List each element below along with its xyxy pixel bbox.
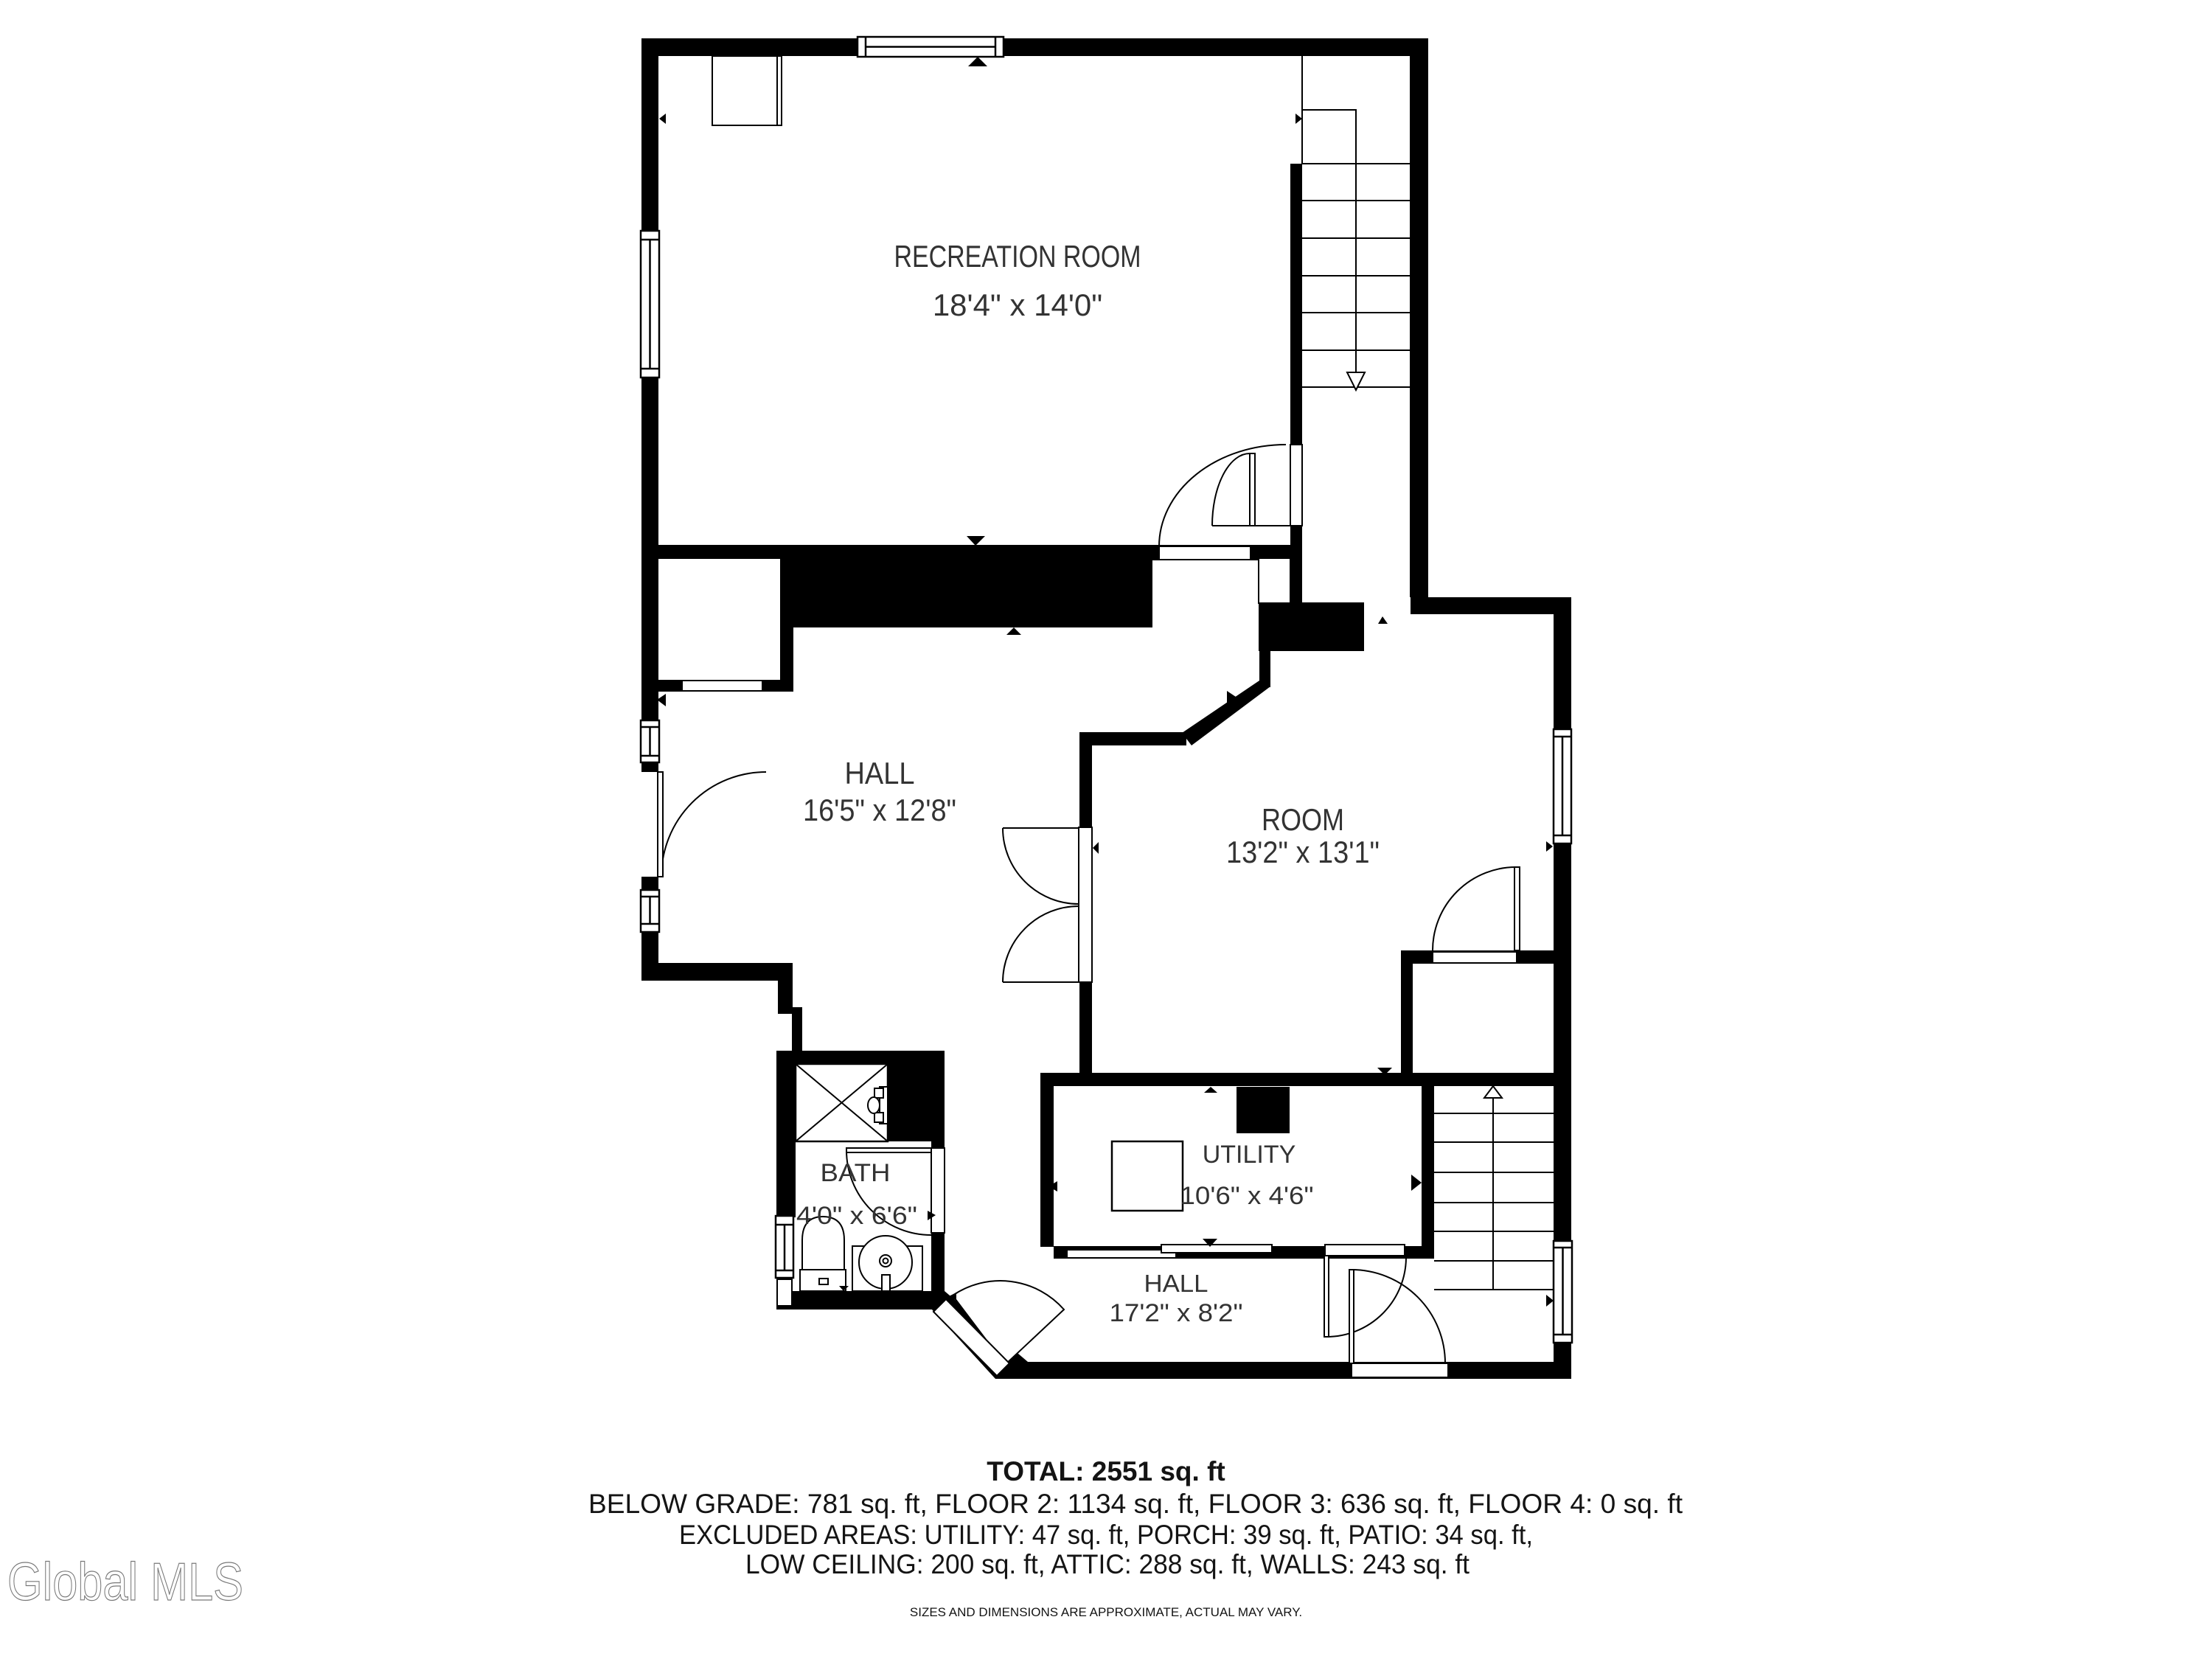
svg-text:UTILITY: UTILITY [1203,1141,1296,1169]
svg-text:16'5" x 12'8": 16'5" x 12'8" [803,793,956,827]
svg-text:BATH: BATH [821,1159,891,1187]
svg-text:18'4" x 14'0": 18'4" x 14'0" [933,288,1102,322]
svg-text:HALL: HALL [1144,1270,1208,1297]
svg-text:LOW CEILING: 200 sq. ft, ATTIC: LOW CEILING: 200 sq. ft, ATTIC: 288 sq. … [745,1549,1470,1579]
svg-text:17'2" x 8'2": 17'2" x 8'2" [1110,1299,1243,1327]
svg-text:EXCLUDED AREAS: UTILITY: 47 sq: EXCLUDED AREAS: UTILITY: 47 sq. ft, PORC… [679,1520,1533,1550]
svg-text:4'0" x 6'6": 4'0" x 6'6" [796,1202,917,1230]
svg-text:RECREATION ROOM: RECREATION ROOM [894,239,1141,274]
svg-text:HALL: HALL [845,756,915,790]
svg-text:BELOW GRADE: 781 sq. ft, FLOOR: BELOW GRADE: 781 sq. ft, FLOOR 2: 1134 s… [588,1489,1683,1519]
svg-text:TOTAL: 2551 sq. ft: TOTAL: 2551 sq. ft [987,1456,1225,1486]
svg-text:13'2" x 13'1": 13'2" x 13'1" [1226,835,1380,869]
svg-text:Global MLS: Global MLS [7,1553,243,1612]
svg-text:ROOM: ROOM [1262,802,1344,837]
svg-text:SIZES AND DIMENSIONS ARE APPRO: SIZES AND DIMENSIONS ARE APPROXIMATE, AC… [910,1605,1302,1619]
svg-text:10'6" x 4'6": 10'6" x 4'6" [1180,1182,1314,1210]
